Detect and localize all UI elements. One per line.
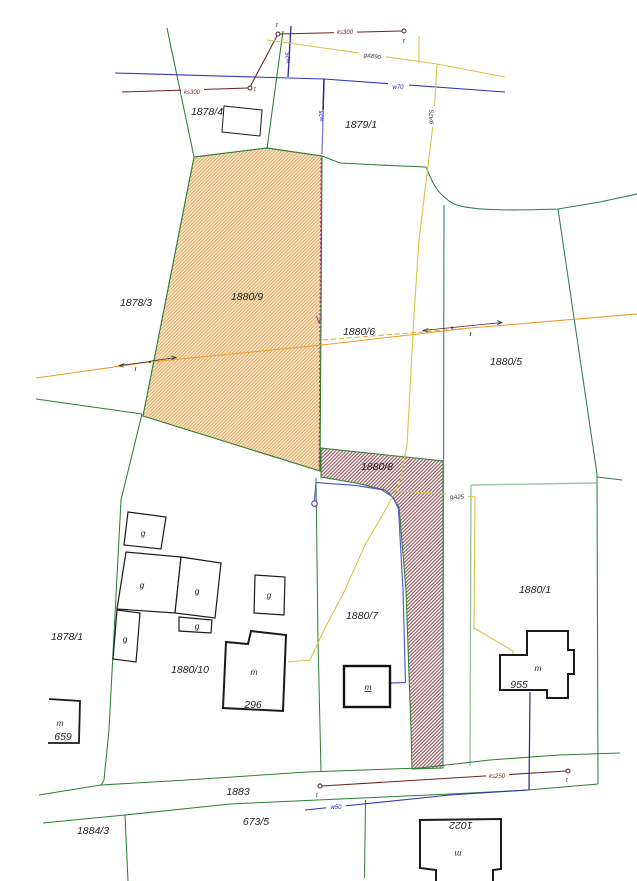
svg-text:1880/6: 1880/6 bbox=[343, 326, 375, 338]
svg-text:955: 955 bbox=[510, 679, 528, 691]
svg-text:1880/8: 1880/8 bbox=[361, 461, 393, 473]
svg-text:1880/7: 1880/7 bbox=[346, 610, 379, 622]
svg-text:g: g bbox=[195, 586, 200, 596]
svg-text:1883: 1883 bbox=[226, 786, 250, 798]
svg-text:1880/10: 1880/10 bbox=[171, 664, 209, 676]
svg-text:1880/1: 1880/1 bbox=[519, 584, 551, 596]
svg-text:m: m bbox=[534, 663, 541, 673]
svg-text:m: m bbox=[454, 849, 461, 859]
svg-text:g: g bbox=[123, 634, 128, 644]
svg-text:g: g bbox=[140, 580, 145, 590]
svg-text:w25: w25 bbox=[320, 110, 326, 122]
svg-text:gA25: gA25 bbox=[450, 495, 465, 501]
svg-text:w70: w70 bbox=[392, 85, 404, 91]
svg-text:1878/1: 1878/1 bbox=[51, 631, 83, 643]
svg-text:m: m bbox=[364, 682, 371, 692]
svg-text:1022: 1022 bbox=[449, 819, 473, 831]
svg-text:1880/9: 1880/9 bbox=[231, 291, 263, 303]
svg-text:m: m bbox=[250, 667, 257, 677]
svg-text:m: m bbox=[56, 718, 63, 728]
svg-text:1878/3: 1878/3 bbox=[120, 297, 152, 309]
svg-text:g: g bbox=[267, 590, 272, 600]
svg-text:w25: w25 bbox=[286, 52, 292, 64]
svg-text:673/5: 673/5 bbox=[243, 816, 269, 828]
svg-text:659: 659 bbox=[54, 731, 72, 743]
svg-text:1880/5: 1880/5 bbox=[490, 356, 522, 368]
svg-text:w50: w50 bbox=[330, 805, 342, 811]
svg-text:g: g bbox=[141, 528, 146, 538]
svg-text:1879/1: 1879/1 bbox=[345, 119, 377, 131]
svg-text:ks300: ks300 bbox=[337, 30, 354, 36]
svg-text:ks300: ks300 bbox=[184, 90, 201, 96]
svg-text:g: g bbox=[195, 621, 200, 631]
svg-text:ks250: ks250 bbox=[489, 774, 506, 780]
svg-text:1878/4: 1878/4 bbox=[191, 106, 223, 118]
svg-text:296: 296 bbox=[243, 699, 262, 711]
svg-text:gA25: gA25 bbox=[428, 109, 435, 124]
svg-text:1884/3: 1884/3 bbox=[77, 825, 109, 837]
